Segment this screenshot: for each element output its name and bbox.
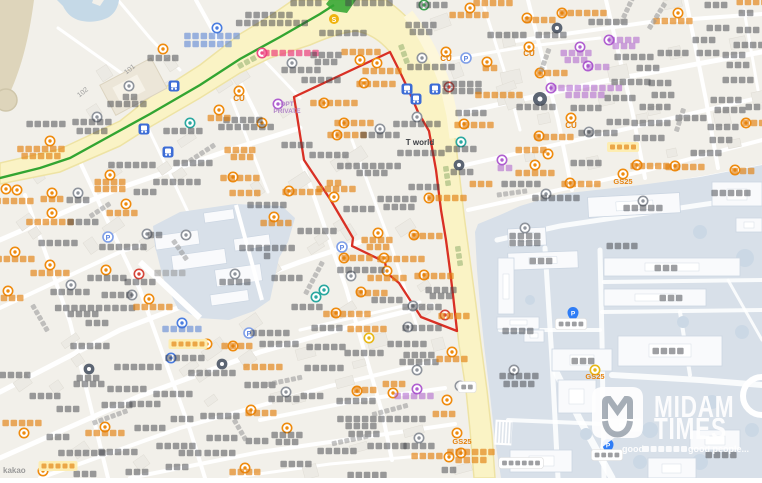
- svg-text:T world: T world: [406, 138, 435, 147]
- svg-text:S: S: [332, 17, 337, 24]
- svg-text:CU: CU: [440, 54, 452, 63]
- svg-text:kakao: kakao: [3, 466, 26, 475]
- svg-text:PRIVATE: PRIVATE: [273, 108, 301, 115]
- svg-text:GS25: GS25: [452, 437, 471, 446]
- svg-text:GS25: GS25: [585, 372, 604, 381]
- svg-text:CU: CU: [523, 49, 535, 58]
- svg-text:P: P: [571, 311, 576, 318]
- svg-text:CU: CU: [233, 94, 245, 103]
- svg-text:P: P: [106, 235, 111, 242]
- svg-text:good people...: good people...: [688, 444, 749, 454]
- svg-text:CU: CU: [565, 121, 577, 130]
- svg-text:P: P: [464, 56, 469, 63]
- svg-text:P: P: [340, 245, 345, 252]
- svg-text:good: good: [622, 444, 644, 454]
- svg-text:OPT: OPT: [280, 101, 293, 108]
- svg-text:TIMES: TIMES: [654, 410, 727, 445]
- svg-text:GS25: GS25: [613, 177, 632, 186]
